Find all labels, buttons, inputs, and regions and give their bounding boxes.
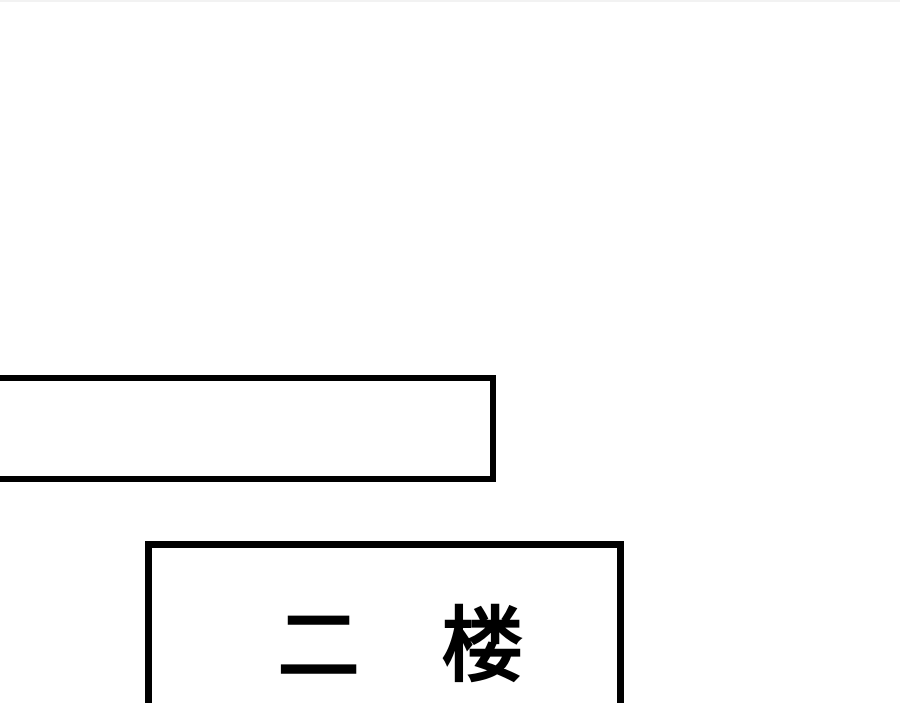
page-top-edge-line [0,0,900,2]
empty-caption-box [0,375,496,482]
floor-sign-box: 二 楼 [145,541,624,703]
comic-panel-page: 二 楼 [0,0,900,703]
floor-sign-text: 二 楼 [152,606,617,688]
